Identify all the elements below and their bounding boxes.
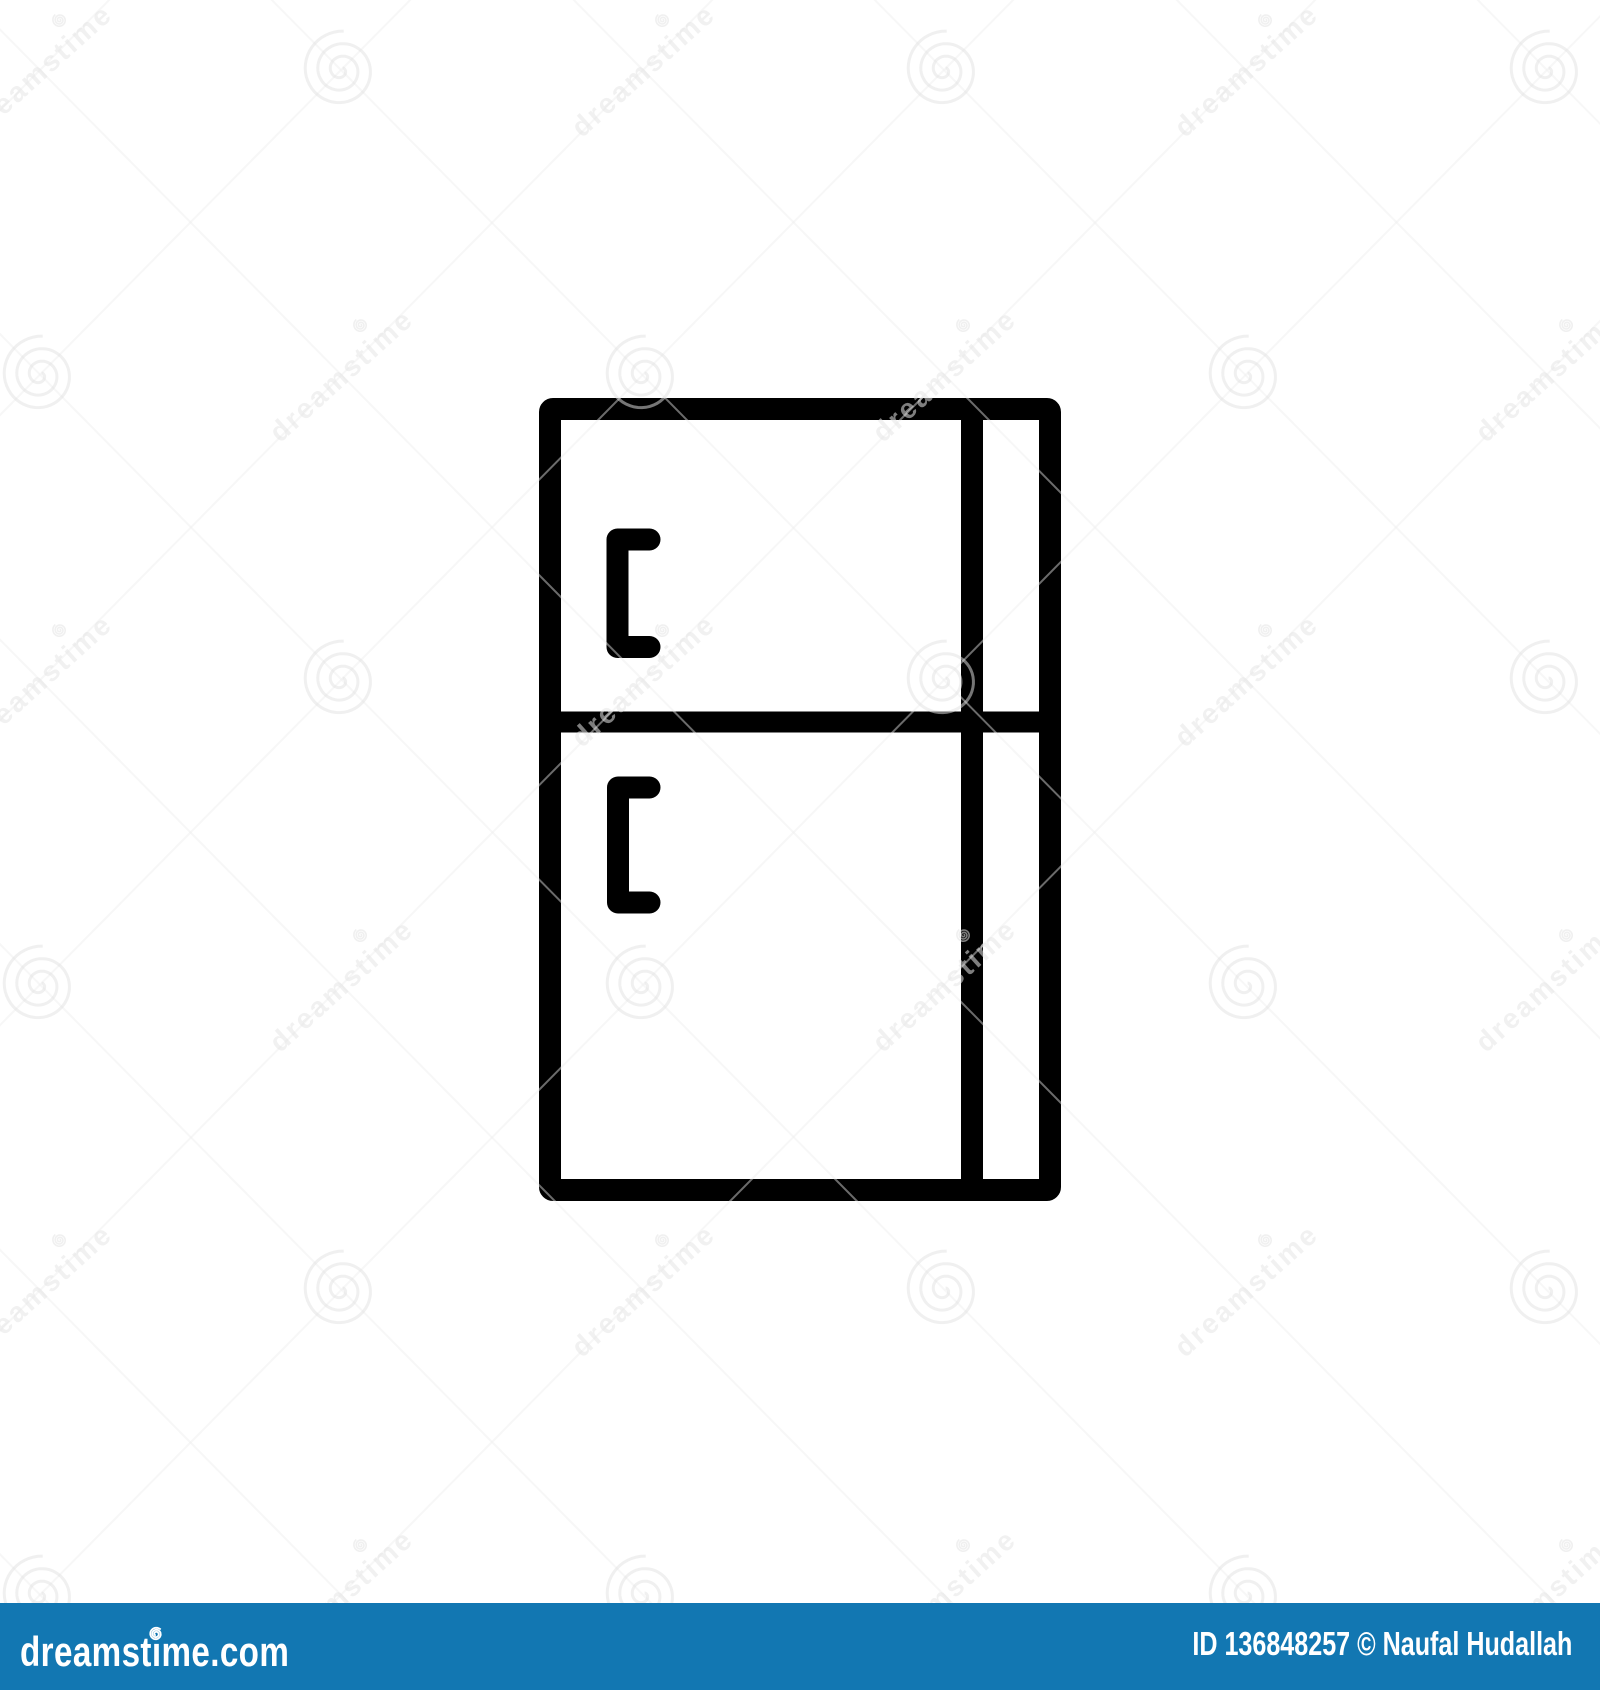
svg-text:dreamstime: dreamstime xyxy=(1168,1218,1324,1363)
svg-text:dreamstime: dreamstime xyxy=(1469,913,1600,1058)
svg-text:dreamstime: dreamstime xyxy=(1168,0,1324,143)
svg-text:dreamstime: dreamstime xyxy=(1168,608,1324,753)
svg-text:dreamstime: dreamstime xyxy=(1469,303,1600,448)
svg-text:dreamstime: dreamstime xyxy=(0,608,118,753)
svg-text:dreamstime: dreamstime xyxy=(263,303,419,448)
svg-text:dreamstime: dreamstime xyxy=(565,0,721,143)
svg-text:dreamstime: dreamstime xyxy=(263,913,419,1058)
svg-text:dreamstime: dreamstime xyxy=(565,1218,721,1363)
svg-text:dreamstime: dreamstime xyxy=(866,913,1022,1058)
svg-text:dreamstime: dreamstime xyxy=(0,1218,118,1363)
svg-text:dreamstime: dreamstime xyxy=(866,303,1022,448)
